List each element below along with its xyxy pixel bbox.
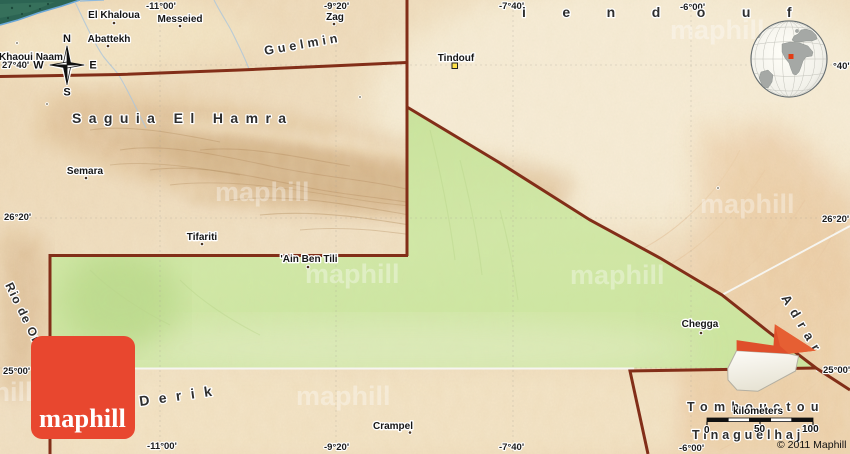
svg-text:Tifariti: Tifariti bbox=[187, 232, 218, 243]
svg-text:50: 50 bbox=[754, 424, 766, 435]
svg-text:El Khaloua: El Khaloua bbox=[88, 10, 140, 21]
svg-text:25°00': 25°00' bbox=[3, 366, 30, 377]
svg-text:S: S bbox=[63, 87, 70, 99]
svg-text:26°20': 26°20' bbox=[822, 214, 849, 225]
svg-text:Chegga: Chegga bbox=[682, 319, 719, 330]
svg-text:Zag: Zag bbox=[326, 12, 344, 23]
svg-text:'Ain Ben Tili: 'Ain Ben Tili bbox=[280, 254, 337, 265]
svg-text:-6°00': -6°00' bbox=[679, 443, 704, 454]
svg-text:maphill: maphill bbox=[570, 260, 665, 290]
svg-text:25°00': 25°00' bbox=[823, 365, 850, 376]
svg-text:W: W bbox=[33, 60, 44, 72]
svg-text:0: 0 bbox=[704, 425, 710, 436]
svg-text:Messeied: Messeied bbox=[157, 14, 202, 25]
svg-text:Crampel: Crampel bbox=[373, 421, 413, 432]
svg-text:26°20': 26°20' bbox=[4, 212, 31, 223]
svg-text:Tindouf: Tindouf bbox=[438, 53, 475, 64]
svg-text:-9°20': -9°20' bbox=[324, 442, 349, 453]
svg-text:kilometers: kilometers bbox=[733, 406, 783, 417]
svg-text:maphill: maphill bbox=[296, 381, 391, 411]
svg-text:-7°40': -7°40' bbox=[499, 442, 524, 453]
svg-text:Abattekh: Abattekh bbox=[88, 34, 131, 45]
svg-text:-9°20': -9°20' bbox=[324, 1, 349, 12]
svg-text:°40': °40' bbox=[833, 61, 850, 72]
svg-text:maphill: maphill bbox=[39, 403, 126, 433]
svg-text:maphill: maphill bbox=[700, 189, 795, 219]
svg-text:-11°00': -11°00' bbox=[147, 441, 177, 452]
svg-text:E: E bbox=[89, 60, 96, 72]
svg-text:© 2011 Maphill: © 2011 Maphill bbox=[777, 439, 846, 451]
svg-text:Saguia El Hamra: Saguia El Hamra bbox=[72, 110, 294, 126]
svg-text:iendouf: iendouf bbox=[522, 4, 828, 20]
svg-text:maphill: maphill bbox=[215, 177, 310, 207]
svg-text:100: 100 bbox=[802, 424, 819, 435]
svg-text:maphill: maphill bbox=[0, 377, 33, 407]
svg-text:-7°40': -7°40' bbox=[499, 1, 524, 12]
svg-text:-11°00': -11°00' bbox=[146, 1, 176, 12]
svg-text:N: N bbox=[63, 33, 71, 45]
svg-text:27°40': 27°40' bbox=[2, 60, 29, 71]
svg-text:Semara: Semara bbox=[67, 166, 104, 177]
